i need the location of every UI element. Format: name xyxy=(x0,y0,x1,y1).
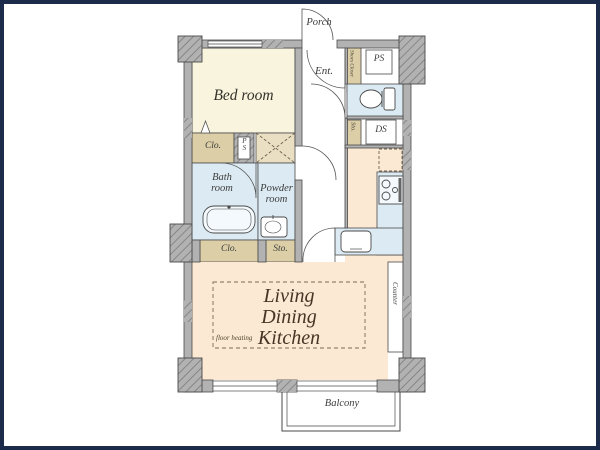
wall-under-toilet xyxy=(347,116,403,119)
stove-icon xyxy=(379,176,403,204)
duct-space-area xyxy=(366,120,396,144)
toilet-door-arc xyxy=(311,84,345,118)
post-bottom-left xyxy=(178,358,202,392)
wall-clo-sto xyxy=(258,240,266,262)
floorplan-drawing xyxy=(0,0,600,450)
wall-right xyxy=(403,40,411,392)
closet-lower-area xyxy=(200,240,258,262)
pipe-space-top-area xyxy=(366,50,392,74)
wall-powder-hall xyxy=(295,180,302,262)
ldk-door-arc xyxy=(303,228,335,262)
storage-mid-area xyxy=(347,120,361,146)
toilet-icon xyxy=(360,88,395,110)
bedroom-area xyxy=(192,48,295,133)
post-bottom-right xyxy=(399,358,425,392)
powder-door-arc xyxy=(302,146,336,180)
closet-upper-area xyxy=(192,133,234,163)
wall-top-right xyxy=(337,40,403,48)
counter-strip xyxy=(388,262,403,352)
porch-door-arc xyxy=(302,9,333,40)
ldk-area xyxy=(192,262,388,380)
bathtub-icon xyxy=(203,205,255,233)
floor-plan: Porch Ent. Shoes Closet PS Bed room Sto.… xyxy=(0,0,600,450)
kitchen-sink-icon xyxy=(341,231,371,252)
wall-under-ds xyxy=(345,145,403,148)
storage-lower-area xyxy=(266,240,295,262)
entrance-door-arc xyxy=(307,50,345,88)
wall-hall-right-2 xyxy=(345,118,348,228)
powder-sink-icon xyxy=(261,215,287,237)
post-top-right xyxy=(399,36,425,84)
balcony-outline xyxy=(282,392,400,431)
wall-bedroom-hall xyxy=(295,48,302,146)
wall-left-of-clo xyxy=(192,240,200,262)
post-top-left xyxy=(178,36,202,62)
post-mid-left xyxy=(170,224,192,262)
wall-left xyxy=(184,40,192,392)
